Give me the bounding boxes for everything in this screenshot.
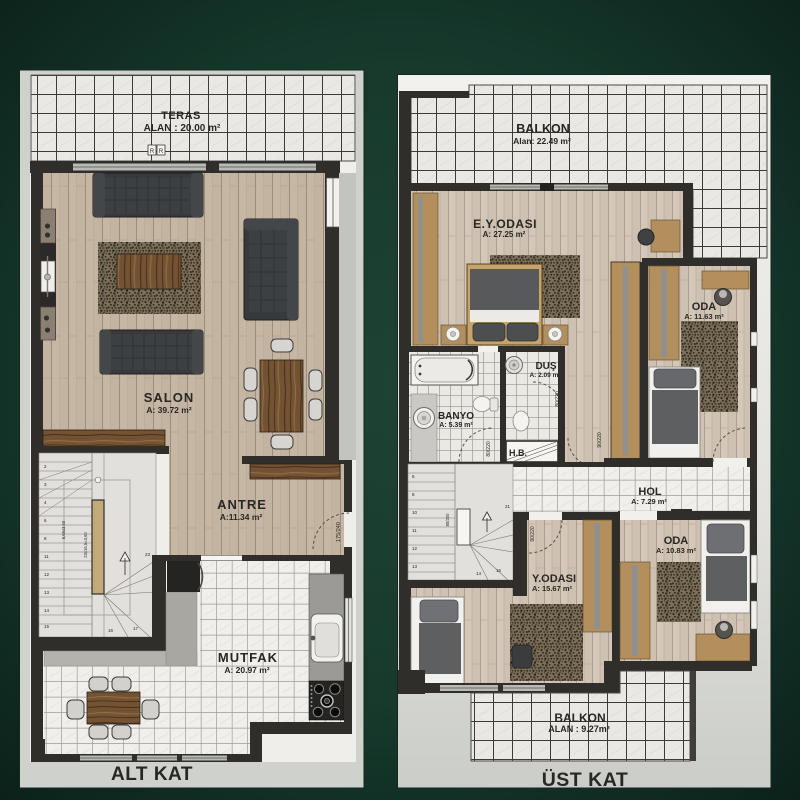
svg-text:A: 39.72 m²: A: 39.72 m²	[146, 405, 192, 415]
svg-text:SALON: SALON	[144, 390, 195, 405]
svg-text:17: 17	[133, 626, 139, 631]
svg-text:A: 20.97 m²: A: 20.97 m²	[224, 665, 270, 675]
svg-text:14: 14	[44, 608, 50, 613]
svg-text:ÜST KAT: ÜST KAT	[542, 768, 629, 791]
svg-text:13: 13	[44, 590, 50, 595]
svg-text:DUŞ: DUŞ	[535, 361, 556, 372]
svg-text:11: 11	[412, 528, 417, 533]
svg-text:90/220: 90/220	[530, 526, 536, 542]
svg-text:BALKON: BALKON	[516, 122, 569, 136]
svg-text:A: 10.83 m²: A: 10.83 m²	[656, 546, 697, 555]
svg-text:12: 12	[44, 572, 50, 577]
svg-text:175/240: 175/240	[336, 522, 342, 542]
svg-text:A: 7.29 m²: A: 7.29 m²	[631, 497, 667, 506]
svg-text:14: 14	[476, 571, 482, 576]
svg-text:A: 5.39 m²: A: 5.39 m²	[439, 422, 473, 429]
svg-text:10: 10	[412, 510, 418, 515]
svg-text:A: 11.63 m²: A: 11.63 m²	[684, 312, 724, 321]
svg-text:23x16,5=3,60: 23x16,5=3,60	[83, 532, 88, 558]
svg-text:80/200: 80/200	[445, 513, 450, 526]
svg-text:15: 15	[44, 624, 50, 629]
svg-text:80/220: 80/220	[486, 441, 492, 457]
svg-text:ALT KAT: ALT KAT	[111, 764, 193, 785]
svg-text:11: 11	[44, 554, 49, 559]
svg-text:R: R	[150, 149, 155, 155]
svg-text:TERAS: TERAS	[161, 110, 201, 122]
svg-text:BANYO: BANYO	[438, 411, 474, 422]
svg-text:A: 27.25 m²: A: 27.25 m²	[483, 230, 526, 239]
svg-text:BALKON: BALKON	[554, 711, 605, 725]
svg-text:21: 21	[505, 504, 511, 509]
svg-text:16: 16	[108, 628, 114, 633]
svg-text:ALAN : 9.27m²: ALAN : 9.27m²	[548, 724, 610, 734]
svg-text:12: 12	[412, 546, 418, 551]
svg-text:R: R	[159, 149, 164, 155]
svg-text:23: 23	[145, 552, 151, 557]
svg-text:ALAN : 20.00 m²: ALAN : 20.00 m²	[144, 123, 221, 134]
svg-text:15: 15	[496, 568, 502, 573]
svg-text:A:11.34 m²: A:11.34 m²	[220, 512, 263, 522]
svg-text:13: 13	[412, 564, 418, 569]
svg-text:Alan: 22.49 m²: Alan: 22.49 m²	[513, 136, 571, 146]
svg-text:ANTRE: ANTRE	[217, 497, 267, 512]
svg-text:A: 2.09 m²: A: 2.09 m²	[529, 372, 561, 379]
svg-text:5,65x3,60: 5,65x3,60	[61, 520, 66, 539]
svg-text:E.Y.ODASI: E.Y.ODASI	[473, 217, 537, 231]
svg-text:MUTFAK: MUTFAK	[218, 650, 278, 665]
svg-text:H.B.: H.B.	[509, 448, 527, 458]
svg-text:90/220: 90/220	[597, 432, 603, 448]
svg-text:A: 15.67 m²: A: 15.67 m²	[532, 584, 573, 593]
